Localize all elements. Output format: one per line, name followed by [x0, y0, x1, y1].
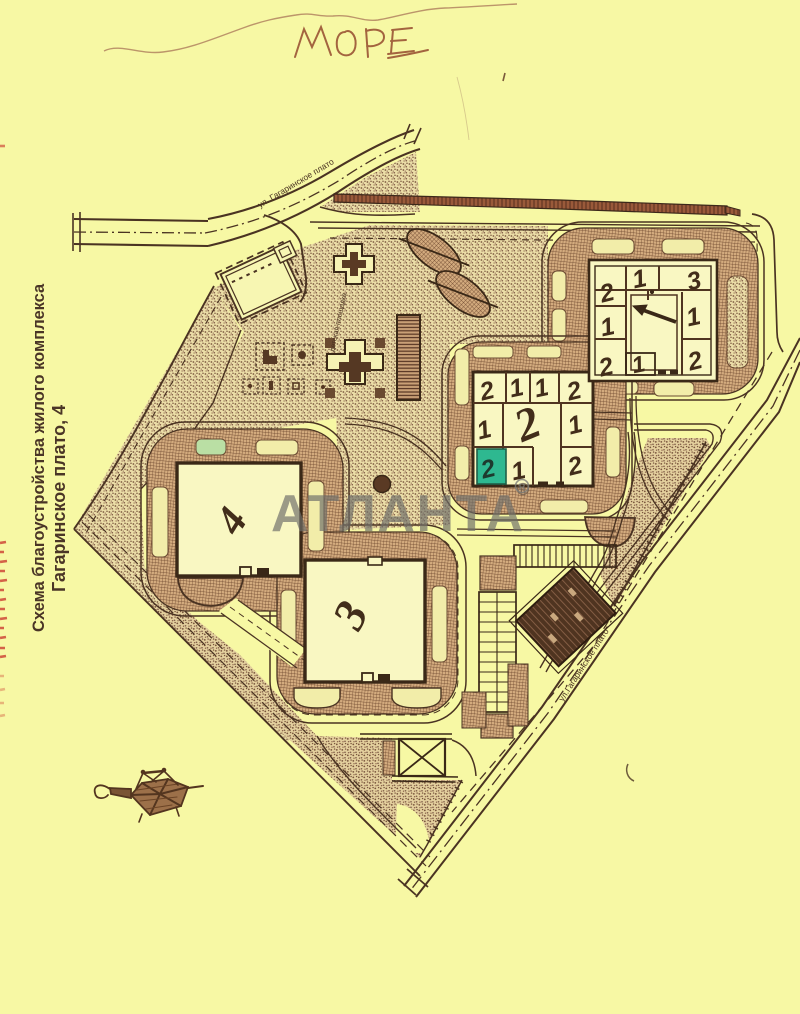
svg-text:АТЛАНТА: АТЛАНТА — [271, 485, 525, 543]
svg-text:Гагаринское плато, 4: Гагаринское плато, 4 — [49, 405, 69, 592]
svg-text:Схема благоустройства жилого к: Схема благоустройства жилого комплекса — [30, 283, 48, 632]
svg-text:R: R — [519, 482, 526, 492]
